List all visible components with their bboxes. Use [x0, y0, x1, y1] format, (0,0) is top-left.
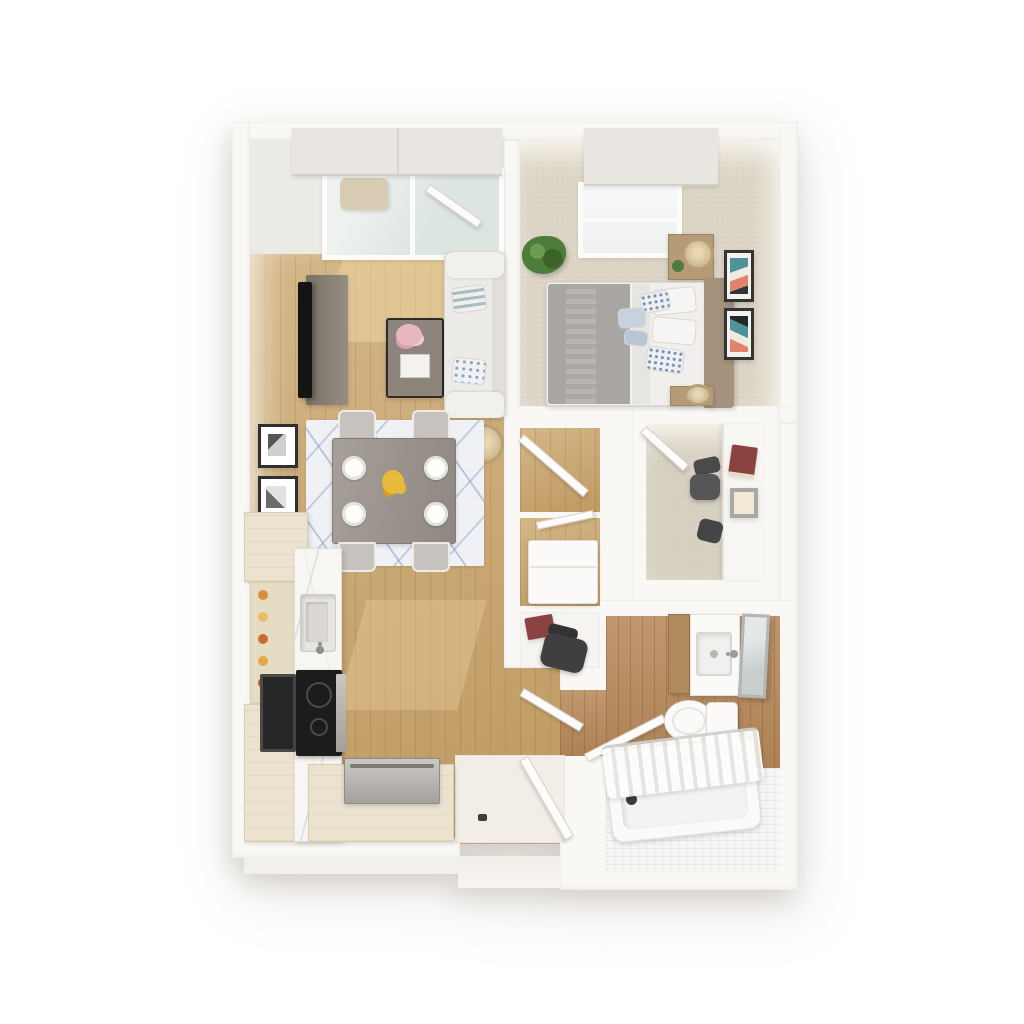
bedroom-art-abstract — [730, 316, 748, 352]
sofa-armrest-top — [446, 252, 504, 278]
cooktop-control-panel — [336, 674, 346, 752]
toilet-seat — [672, 707, 706, 735]
sofa-pillow-striped — [450, 284, 487, 314]
place-setting-plate — [342, 502, 366, 526]
wall-oven — [260, 674, 296, 752]
living-art-abstract — [266, 486, 286, 508]
table-lamp — [682, 238, 714, 270]
bedroom-art-abstract — [730, 258, 748, 294]
flower-centerpiece — [382, 470, 404, 494]
dining-chair — [338, 410, 376, 440]
appliance-seam — [530, 566, 596, 568]
wall-living-bedroom-divider — [504, 140, 520, 420]
place-setting-plate — [424, 502, 448, 526]
balcony-lounge-chair — [340, 178, 388, 210]
white-appliance — [528, 540, 598, 604]
valance-seam — [397, 128, 399, 174]
table-lamp — [684, 384, 712, 406]
sofa-backrest — [492, 256, 505, 414]
office-chair-seat — [690, 474, 720, 500]
coffee-table-book — [400, 354, 430, 378]
bed-pillow-floral — [645, 345, 686, 374]
tv — [298, 282, 312, 398]
dining-chair — [412, 542, 450, 572]
place-setting-plate — [342, 456, 366, 480]
den-red-book — [728, 444, 758, 477]
apartment-floorplan — [0, 0, 1024, 1024]
bedroom-roller-shade — [584, 128, 718, 186]
bed-knit-runner — [566, 284, 596, 404]
den-framed-box — [730, 488, 758, 518]
dishwasher-handle — [350, 764, 434, 768]
kitchen-faucet — [316, 646, 324, 654]
living-art-abstract — [268, 434, 286, 456]
dining-chair — [338, 542, 376, 572]
vanity-faucet — [730, 650, 738, 658]
foundation-slab — [244, 856, 460, 874]
kitchen-sink-basin — [306, 602, 328, 642]
nightstand-plant — [672, 260, 684, 272]
tv-console — [306, 275, 348, 405]
vanity-sink-drain — [710, 650, 718, 658]
leaning-mirror — [738, 613, 770, 698]
bed-pillow-white — [651, 316, 697, 346]
window-mullion — [410, 170, 415, 258]
doorstop — [478, 814, 487, 821]
vanity-cabinet — [668, 614, 690, 694]
dining-chair — [412, 410, 450, 440]
place-setting-plate — [424, 456, 448, 480]
sofa-pillow-floral — [451, 356, 488, 385]
spice-jar — [258, 590, 268, 600]
floorplan-canvas — [0, 0, 1024, 1024]
bedroom-window-mullion — [582, 218, 678, 222]
cooktop-burner — [306, 682, 332, 708]
cooktop-burner — [310, 718, 328, 736]
sofa-armrest-bottom — [446, 392, 504, 418]
bed-cushion-blue — [617, 307, 646, 329]
bed-cushion-blue — [623, 329, 649, 348]
coffee-table-flowers — [396, 324, 422, 346]
